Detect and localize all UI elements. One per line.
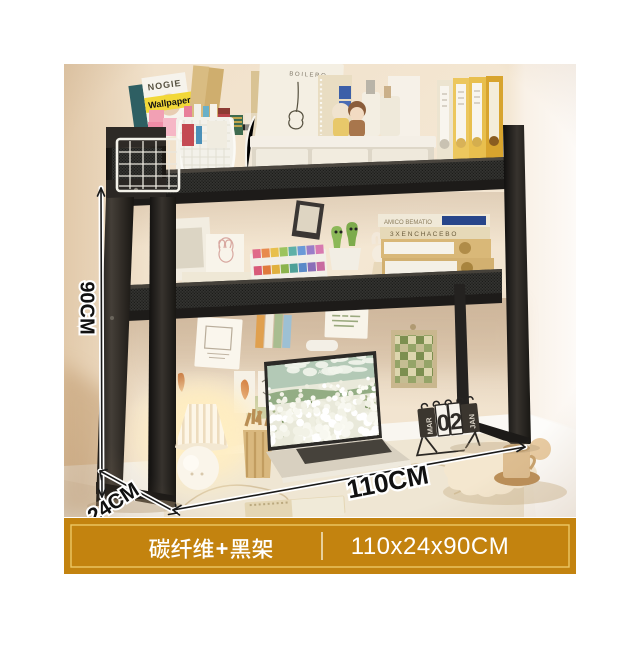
svg-text:90CM: 90CM bbox=[76, 281, 98, 334]
svg-text:110x24x90CM: 110x24x90CM bbox=[351, 533, 509, 560]
